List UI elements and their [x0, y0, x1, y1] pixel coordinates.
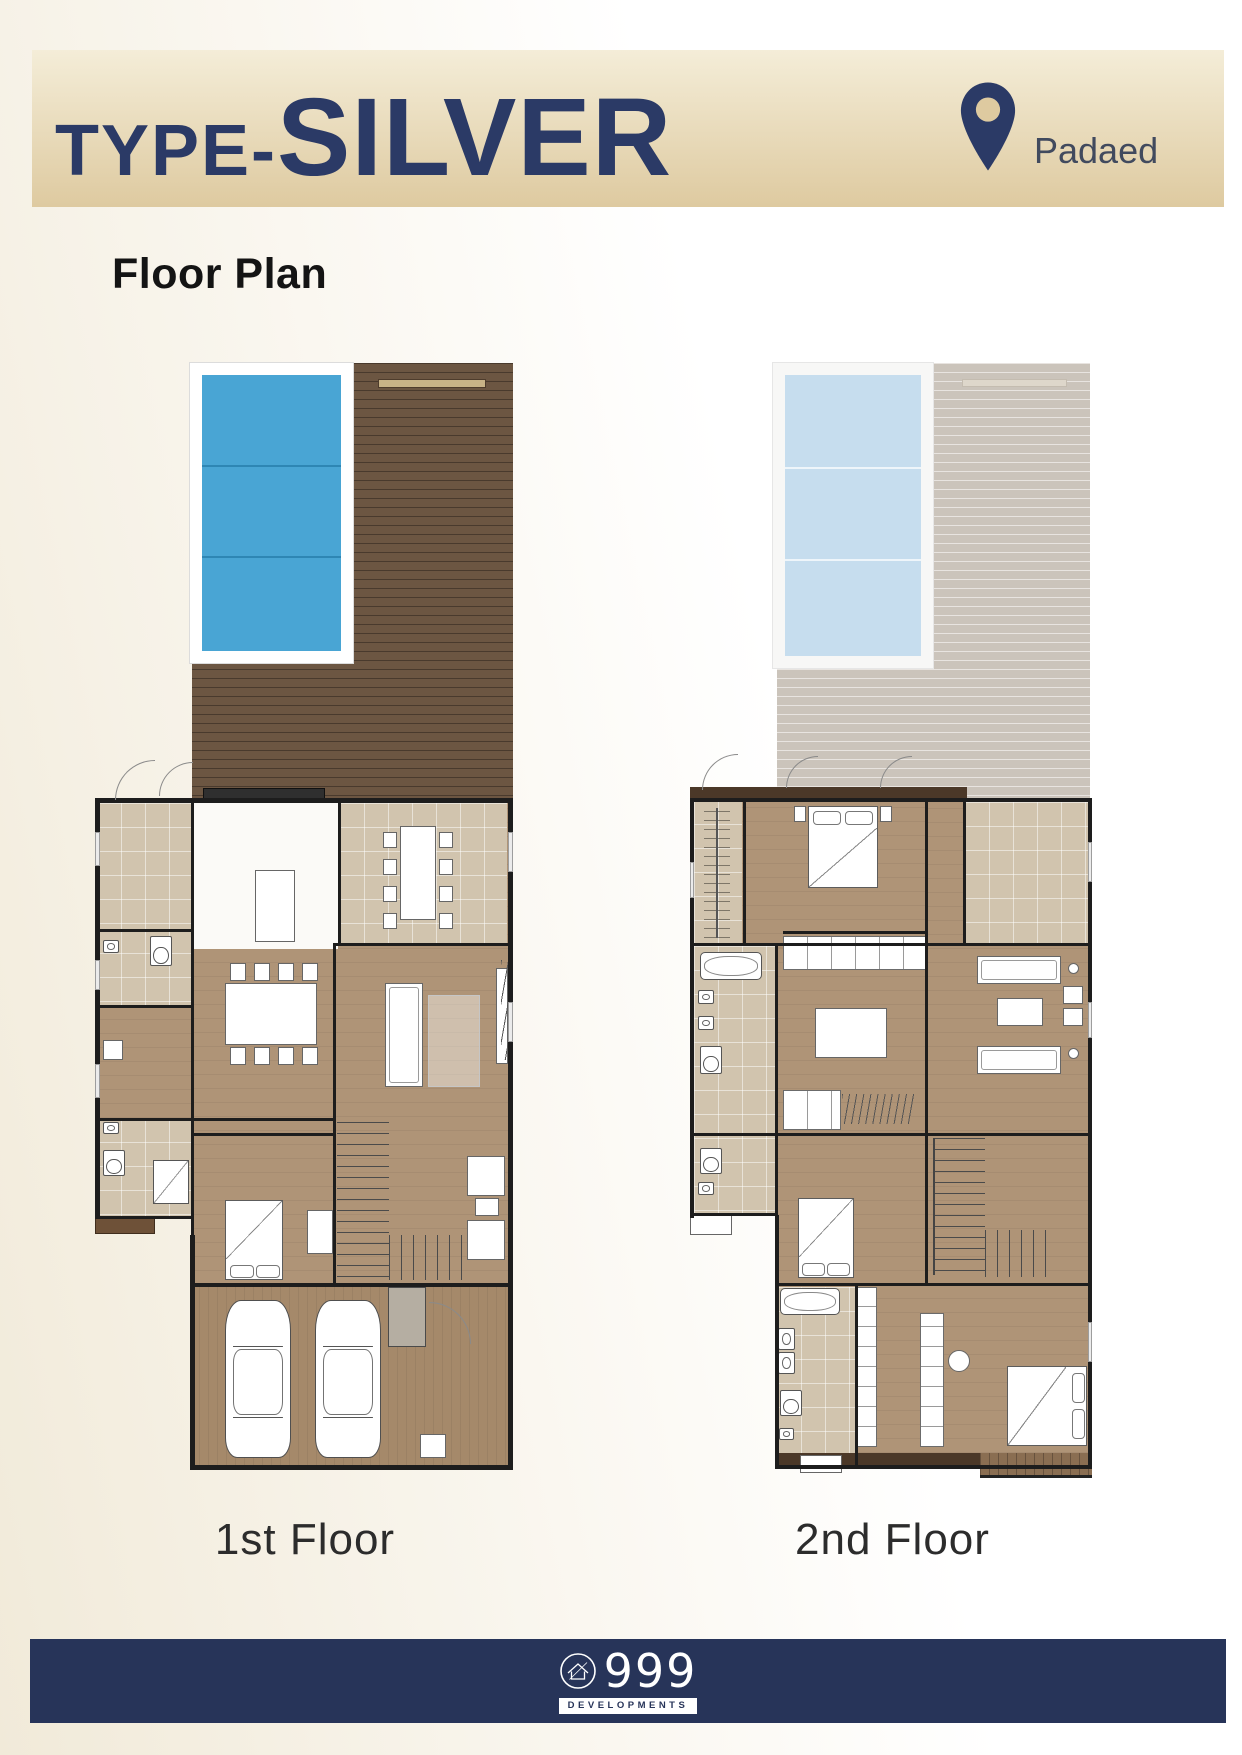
patio-chair [383, 886, 397, 902]
brand-number: 999 [604, 1648, 698, 1694]
wall [97, 1005, 193, 1008]
stairs [337, 1122, 389, 1278]
entry-floor [97, 803, 193, 929]
wall [333, 945, 336, 1285]
wall [338, 803, 341, 945]
balcony-floor [965, 802, 1088, 944]
dining-table [225, 983, 317, 1045]
bed [225, 1200, 283, 1280]
location-label: Padaed [1034, 130, 1158, 172]
toilet [150, 936, 172, 966]
window [95, 832, 100, 866]
wall [333, 943, 511, 946]
wall [692, 943, 1090, 946]
landing-step [690, 1215, 732, 1235]
dining-chair [302, 1047, 318, 1065]
patio-chair [383, 913, 397, 929]
utility-box [420, 1434, 446, 1458]
car [315, 1300, 381, 1458]
wardrobe [920, 1313, 944, 1447]
window [508, 1002, 513, 1042]
window [1088, 1322, 1092, 1362]
bed [808, 806, 878, 888]
swimming-pool-below [785, 375, 921, 656]
armchair [467, 1220, 505, 1260]
stair-winders [985, 1230, 1057, 1277]
closet-island [815, 1008, 887, 1058]
armchair [467, 1156, 505, 1196]
pillow [827, 1263, 850, 1276]
wall [775, 945, 778, 1467]
wall [925, 800, 928, 1286]
wall [191, 803, 194, 1285]
dining-chair [254, 1047, 270, 1065]
header-band: TYPE-SILVER Padaed [32, 50, 1224, 207]
hanging-rail-bar [716, 808, 718, 938]
wall [855, 1285, 858, 1467]
patio-chair [439, 913, 453, 929]
sink [778, 1352, 795, 1374]
wall [191, 1133, 336, 1136]
stair-winders [389, 1235, 467, 1280]
pillow [1072, 1409, 1085, 1439]
first-floor-label: 1st Floor [95, 1515, 515, 1565]
side-table [475, 1198, 499, 1216]
window [95, 1064, 100, 1098]
sink [698, 1182, 714, 1195]
toilet [700, 1046, 722, 1074]
tv-cabinet [1063, 986, 1083, 1004]
rear-step [800, 1455, 842, 1473]
wall [95, 798, 513, 803]
sink [698, 990, 714, 1004]
second-floor-plan [690, 362, 1095, 1484]
section-heading: Floor Plan [112, 250, 327, 299]
page-title: TYPE-SILVER [55, 83, 672, 193]
brand-logo: 999 DEVELOPMENTS [559, 1648, 698, 1713]
laundry-floor [97, 1005, 193, 1118]
wall [95, 1118, 336, 1121]
first-floor-plan [95, 362, 515, 1474]
wall [775, 1283, 1092, 1286]
door-swing [702, 754, 738, 790]
washer [103, 1040, 123, 1060]
deck-bench [378, 379, 486, 388]
wardrobe [783, 936, 926, 970]
window [1088, 842, 1092, 882]
dining-chair [278, 963, 294, 981]
bench [95, 1218, 155, 1234]
sofa [385, 983, 423, 1087]
patio-chair [439, 832, 453, 848]
bathtub [700, 952, 762, 980]
toilet [103, 1150, 125, 1176]
location-pin-icon [958, 80, 1018, 174]
bathtub [780, 1288, 840, 1315]
location-badge: Padaed [958, 80, 1158, 174]
sink [103, 1122, 119, 1134]
speaker [1068, 963, 1079, 974]
door-swing [115, 760, 155, 800]
garage-step [388, 1287, 426, 1347]
sofa [977, 1046, 1061, 1074]
dining-chair [230, 1047, 246, 1065]
patio-table [400, 826, 436, 920]
tv-cabinet [1063, 1008, 1083, 1026]
dresser [307, 1210, 333, 1254]
pillow [802, 1263, 825, 1276]
door-swing [159, 762, 193, 796]
patio-chair [439, 886, 453, 902]
footer-band: 999 DEVELOPMENTS [30, 1639, 1226, 1723]
brand-subtitle: DEVELOPMENTS [559, 1698, 698, 1713]
shower [153, 1160, 189, 1204]
wall [775, 1465, 1092, 1469]
patio-chair [383, 859, 397, 875]
patio-chair [439, 859, 453, 875]
wardrobe [855, 1287, 877, 1447]
kitchen-island [255, 870, 295, 942]
wall [97, 929, 193, 932]
pillow [813, 811, 841, 825]
toilet [700, 1148, 722, 1174]
stairs [935, 1138, 985, 1273]
chair [948, 1350, 970, 1372]
pillow [845, 811, 873, 825]
wall [690, 1213, 778, 1216]
pillow [230, 1265, 254, 1278]
dining-chair [230, 963, 246, 981]
house-circle-icon [559, 1652, 597, 1690]
wall [692, 1133, 1090, 1136]
car [225, 1300, 291, 1458]
dining-chair [254, 963, 270, 981]
wall [190, 1465, 513, 1470]
coffee-table [997, 998, 1043, 1026]
rug [428, 995, 480, 1087]
bed [798, 1198, 854, 1278]
wall [508, 798, 513, 1470]
sink [779, 1428, 794, 1440]
window [508, 832, 513, 872]
nightstand [794, 806, 806, 822]
pillow [1072, 1373, 1085, 1403]
sink [103, 940, 119, 953]
window [95, 960, 100, 990]
hanger-rail [842, 1094, 914, 1124]
sink [698, 1016, 714, 1030]
patio-chair [383, 832, 397, 848]
nightstand [880, 806, 892, 822]
pillow [256, 1265, 280, 1278]
wall [783, 931, 928, 934]
sofa [977, 956, 1061, 984]
window [1088, 1002, 1092, 1038]
window [690, 862, 694, 898]
sink [778, 1328, 795, 1350]
wall [963, 800, 966, 945]
swimming-pool [202, 375, 341, 651]
toilet [780, 1390, 802, 1416]
wardrobe [783, 1090, 841, 1130]
wall [690, 798, 694, 1218]
wall [692, 798, 1090, 802]
deck-bench-below [962, 379, 1067, 387]
wall [190, 1283, 513, 1287]
rear-balcony-rail [980, 1475, 1092, 1478]
dining-chair [302, 963, 318, 981]
type-prefix: TYPE- [55, 115, 277, 187]
wall [743, 800, 746, 945]
dining-chair [278, 1047, 294, 1065]
wall [95, 1216, 193, 1219]
bed [1007, 1366, 1087, 1446]
type-name: SILVER [277, 83, 672, 193]
second-floor-label: 2nd Floor [690, 1515, 1095, 1565]
speaker [1068, 1048, 1079, 1059]
